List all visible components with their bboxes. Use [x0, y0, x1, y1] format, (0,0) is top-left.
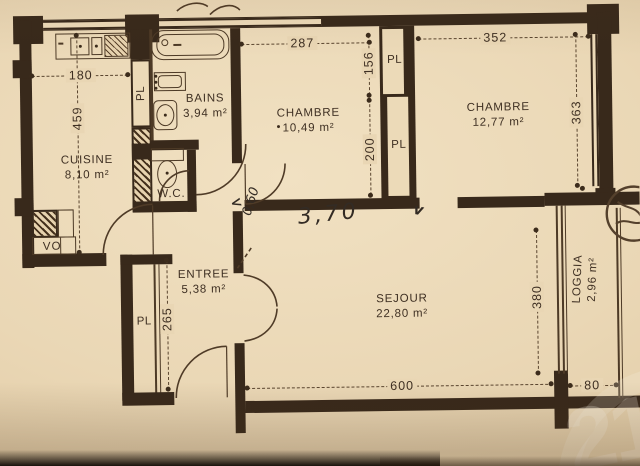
room-label-bains: BAINS 3,94 m²: [176, 91, 234, 122]
closet-label: PL: [391, 139, 406, 151]
floorplan: 180 459 287 156 200 352 363 265 380 600 …: [0, 0, 640, 466]
dim-label: 200: [363, 134, 377, 164]
photo-edge-shadow: [0, 450, 440, 466]
dim-dot: [368, 193, 373, 198]
dim-label: 287: [287, 36, 317, 50]
room-name: CHAMBRE: [458, 100, 538, 116]
stamp-circle: [606, 186, 640, 241]
bath-door-arc: [196, 144, 247, 195]
room-label-loggia: LOGGIA 2,96 m²: [569, 239, 602, 320]
dim-dot: [416, 36, 421, 41]
dim-label: 265: [160, 304, 174, 334]
dim-dot: [367, 40, 372, 45]
plan-linework: [0, 0, 640, 466]
room-label-chambre1: CHAMBRE 10,49 m²: [268, 106, 348, 137]
room-label-wc: W.C.: [149, 187, 193, 203]
room-label-cuisine: CUISINE 8,10 m²: [37, 153, 137, 184]
dim-label: 459: [70, 103, 84, 133]
dim-dot: [125, 72, 130, 77]
room-name: SEJOUR: [363, 291, 441, 307]
dim-dot: [29, 73, 34, 78]
dim-dot: [580, 186, 585, 191]
kitchen-door-arc: [103, 204, 154, 255]
closet-label: PL: [387, 54, 402, 66]
dim-label: 180: [66, 68, 96, 82]
room-name: CUISINE: [37, 153, 137, 169]
room-area: 22,80 m²: [363, 306, 441, 322]
dim-dot: [77, 250, 82, 255]
room-area: 12,77 m²: [458, 115, 538, 131]
dim-dot: [533, 227, 538, 232]
dim-dot: [573, 32, 578, 37]
dim-dot: [535, 370, 540, 375]
stamp-mark: [616, 221, 640, 224]
kitchen-door-leaf: [153, 205, 154, 254]
room-area: 8,10 m²: [37, 167, 137, 183]
dim-label: 156: [361, 48, 375, 78]
dim-label: 380: [530, 282, 544, 312]
dim-dot: [74, 33, 79, 38]
room-area: 5,38 m²: [164, 282, 244, 298]
dim-dot: [166, 387, 171, 392]
duct-label: VO: [43, 241, 62, 253]
room-area: 2,96 m²: [584, 239, 602, 320]
pen-squiggle: [177, 3, 240, 15]
stamp-mark: [618, 202, 640, 218]
entry-door-arc: [176, 346, 228, 398]
room-label-chambre2: CHAMBRE 12,77 m²: [458, 100, 538, 131]
dim-dot: [164, 258, 169, 263]
double-door-arc: [244, 275, 277, 307]
room-area: 10,49 m²: [268, 121, 348, 137]
dim-dot: [549, 381, 554, 386]
room-area: 3,94 m²: [176, 106, 234, 122]
room-name: CHAMBRE: [268, 106, 348, 122]
room-name: W.C.: [149, 187, 193, 203]
entry-door-leaf: [227, 346, 228, 397]
hand-dash: [237, 248, 251, 268]
room-label-sejour: SEJOUR 22,80 m²: [363, 291, 441, 322]
photo-edge-shadow: [380, 456, 640, 466]
dim-dot: [245, 385, 250, 390]
room-name: BAINS: [176, 91, 234, 107]
room-label-entree: ENTREE 5,38 m²: [163, 267, 243, 298]
closet-label: PL: [135, 86, 147, 101]
dim-label: 363: [569, 97, 583, 127]
floorplan-photo: 180 459 287 156 200 352 363 265 380 600 …: [0, 0, 640, 466]
room-name: ENTREE: [163, 267, 243, 283]
dim-label: 600: [387, 379, 417, 393]
dim-dot: [239, 42, 244, 47]
dim-dot: [586, 34, 591, 39]
dim-dot: [366, 33, 371, 38]
closet-label: PL: [137, 315, 152, 327]
double-door-arc: [244, 309, 277, 341]
dim-dot: [568, 383, 573, 388]
dim-dot: [367, 98, 372, 103]
dim-label: 352: [480, 30, 510, 44]
